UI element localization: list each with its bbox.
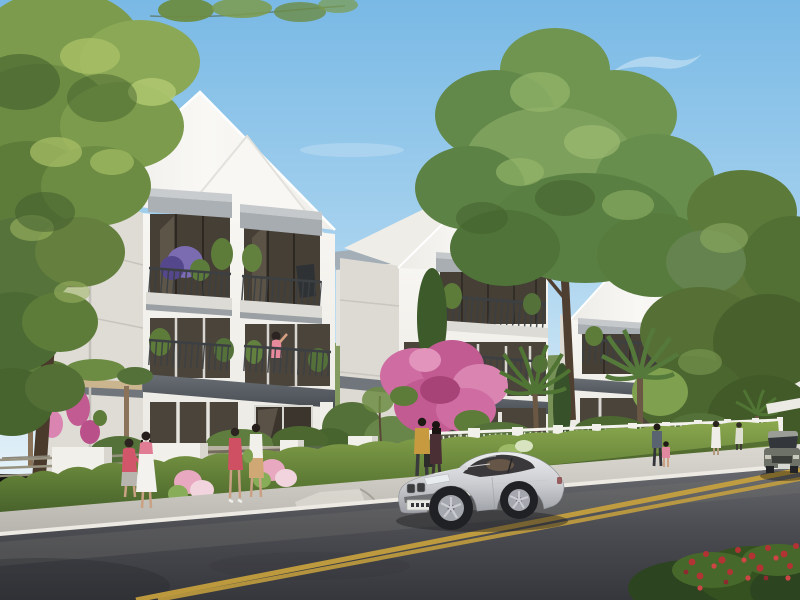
villa-street-scene	[0, 0, 800, 600]
rear-wheel	[500, 481, 538, 519]
front-wheel	[429, 486, 473, 530]
architectural-rendering	[0, 0, 800, 600]
